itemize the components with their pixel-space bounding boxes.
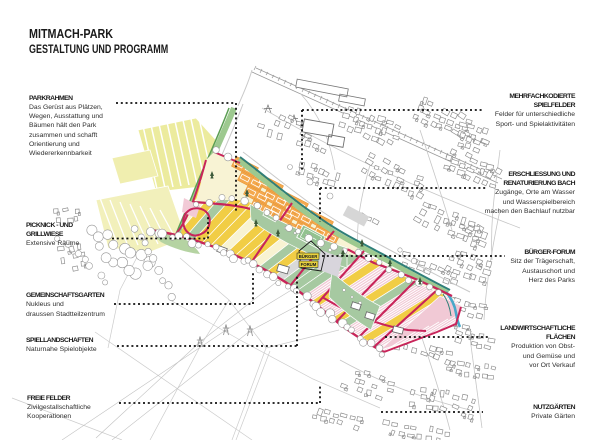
svg-text:BÜRGER: BÜRGER — [299, 254, 319, 259]
svg-text:FORUM: FORUM — [301, 262, 317, 267]
